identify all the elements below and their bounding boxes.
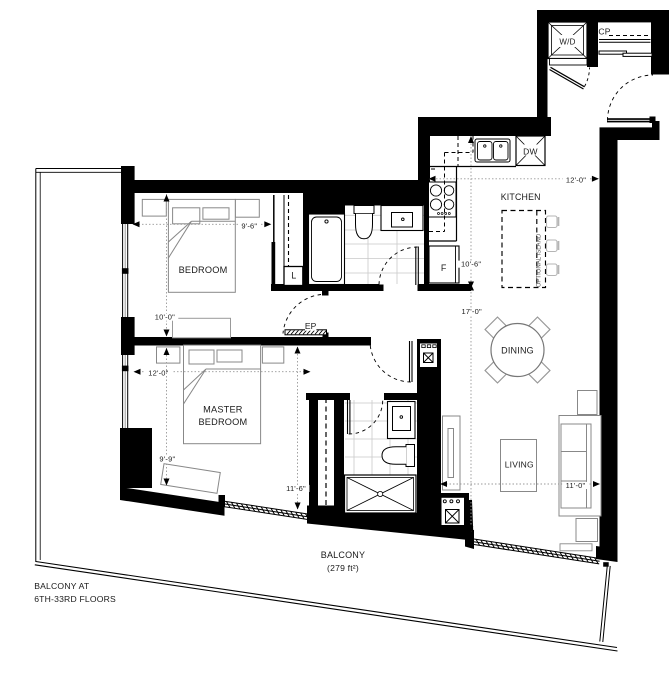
svg-text:BEDROOM: BEDROOM: [198, 417, 247, 427]
svg-text:OPTIONAL ISLAND: OPTIONAL ISLAND: [537, 233, 543, 287]
svg-text:12'-0": 12'-0": [148, 368, 168, 377]
svg-text:9'-6": 9'-6": [241, 221, 257, 230]
svg-text:KITCHEN: KITCHEN: [501, 192, 541, 202]
svg-text:F: F: [441, 263, 447, 273]
svg-text:LIVING: LIVING: [505, 459, 534, 469]
svg-text:9'-9": 9'-9": [159, 455, 175, 464]
svg-text:CP: CP: [598, 27, 610, 37]
svg-text:DINING: DINING: [501, 345, 534, 355]
svg-text:6TH-33RD FLOORS: 6TH-33RD FLOORS: [34, 594, 116, 604]
svg-text:12'-0": 12'-0": [566, 176, 586, 185]
svg-text:10'-6": 10'-6": [461, 260, 481, 269]
svg-text:BALCONY: BALCONY: [321, 550, 365, 560]
svg-text:MASTER: MASTER: [203, 405, 243, 415]
svg-text:11'-6": 11'-6": [286, 484, 306, 493]
svg-text:BEDROOM: BEDROOM: [179, 265, 228, 275]
svg-text:17'-0": 17'-0": [462, 307, 482, 316]
svg-text:10'-0": 10'-0": [155, 313, 175, 322]
svg-text:EP: EP: [305, 321, 317, 331]
svg-text:W/D: W/D: [559, 38, 575, 47]
svg-text:11'-0": 11'-0": [566, 481, 586, 490]
svg-text:DW: DW: [523, 147, 538, 157]
svg-text:BALCONY AT: BALCONY AT: [34, 581, 90, 591]
svg-text:(279 ft²): (279 ft²): [327, 563, 359, 573]
svg-text:L: L: [291, 270, 296, 280]
